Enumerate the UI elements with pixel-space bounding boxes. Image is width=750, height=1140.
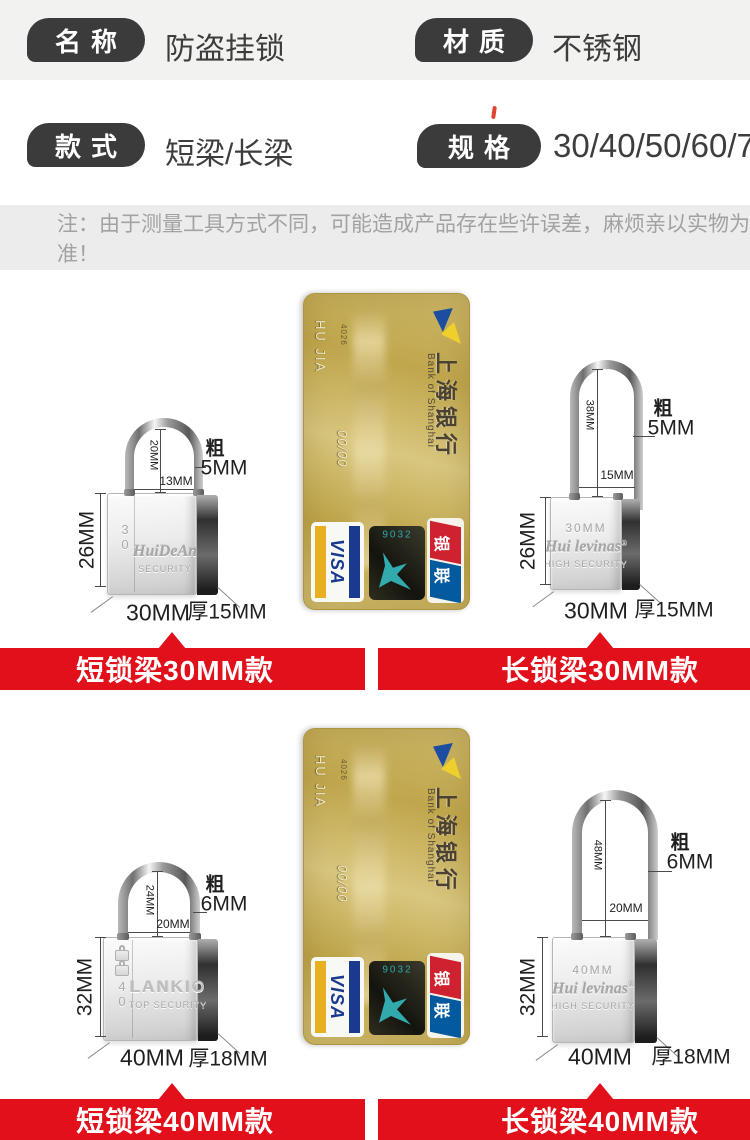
engraving-size: 40MM [572,963,613,977]
body-depth-label: 厚18MM [651,1047,730,1068]
engraving-subtitle: HIGH SECURITY [551,1001,635,1011]
dimension-line [597,369,598,497]
dimension-line [100,493,101,587]
padlock-engraving: HuiDeAn SECURITY [133,543,197,574]
dimension-line [605,800,606,937]
unionpay-logo: 银联 [427,518,464,603]
dimension-line [134,489,195,490]
padlock-shackle [572,790,658,940]
guide-line [536,1044,558,1061]
bank-card-reference: 上海银行 Bank of Shanghai 银联 4026 00/00 HU J… [305,293,470,608]
spec-pill-style-label: 款式 [55,127,127,164]
bank-card: 上海银行 Bank of Shanghai 银联 4026 00/00 HU J… [303,293,470,610]
spec-pill-material: 材质 [415,18,533,62]
guide-line [91,596,113,613]
engraving-subtitle: SECURITY [138,564,192,574]
card-bin: 4026 [339,759,348,781]
engraving-brand: HuiDeAn [133,543,197,561]
shackle-inner-height-label: 20MM [148,440,159,471]
padlock-figure-short-40mm: 24MM 20MM 粗 6MM 40 LANKIO TOP SECURITY 3… [70,855,285,1080]
dimension-line [100,937,101,1037]
bank-card: 上海银行 Bank of Shanghai 银联 4026 00/00 HU J… [303,728,470,1045]
engraving-brand: LANKIO [129,977,206,997]
body-width-label: 40MM [120,1047,184,1070]
bank-logo-icon [431,308,461,346]
banner-short-40mm: 短锁梁40MM款 [0,1099,365,1140]
body-width-label: 30MM [126,602,190,625]
engraving-side-number: 30 [119,523,131,553]
product-spec-page: 名称 防盗挂锁 材质 不锈钢 款式 短梁/长梁 规格 30/40/50/60/7… [0,0,750,1140]
shackle-gauge-label: 6MM [667,852,714,873]
padlock-body-side [635,939,657,1043]
measurement-note: 注：由于测量工具方式不同，可能造成产品存在些许误差，麻烦亲以实物为准！ [0,205,750,270]
dimension-line [582,920,648,921]
dimension-line [128,932,190,933]
padlock-engraving: 40MM Hui levinas® HIGH SECURITY [551,963,635,1011]
spec-value-name: 防盗挂锁 [165,24,285,68]
engraving-subtitle: HIGH SECURITY [544,559,628,569]
hologram-label: 9032 [382,965,412,976]
shackle-inner-height-label: 38MM [584,400,595,431]
hologram: 9032 [369,526,425,600]
banner-pointer-triangle [586,1083,614,1100]
engraving-brand: Hui levinas [552,980,628,997]
card-holder-name: HU JIA [313,320,328,373]
banner-long-40mm: 长锁梁40MM款 [378,1099,750,1140]
unionpay-label: 银联 [431,518,455,603]
banner-label: 短锁梁40MM款 [76,1100,274,1140]
dimension-line [579,487,635,488]
spec-pill-material-label: 材质 [443,22,515,59]
spec-value-style: 短梁/长梁 [165,129,293,173]
bank-name-en: Bank of Shanghai [425,788,436,883]
padlock-body-side [197,495,218,595]
padlock-figure-short-30mm: 20MM 13MM 粗 5MM 30 HuiDeAn SECURITY 26MM… [75,415,280,630]
shackle-inner-width-label: 20MM [609,902,642,914]
note-text: 注：由于测量工具方式不同，可能造成产品存在些许误差，麻烦亲以实物为准！ [57,208,750,268]
banner-pointer-triangle [158,1083,186,1100]
padlock-engraving: LANKIO TOP SECURITY [129,977,207,1010]
hologram-bird-icon [375,983,415,1027]
banner-label: 长锁梁40MM款 [501,1100,699,1140]
banner-long-30mm: 长锁梁30MM款 [378,648,750,690]
bank-card-reference: 上海银行 Bank of Shanghai 银联 4026 00/00 HU J… [305,728,470,1043]
body-height-label: 32MM [518,958,539,1016]
shackle-inner-width-label: 13MM [159,475,192,487]
spec-pill-name-label: 名称 [55,22,127,59]
stray-red-mark [491,106,497,119]
padlock-engraving-side: 40 [115,950,129,1010]
banner-pointer-triangle [586,632,614,649]
padlock-figure-long-30mm: 38MM 15MM 粗 5MM 30MM Hui levinas® HIGH S… [500,355,740,630]
spec-pill-size-label: 规格 [448,128,520,165]
shackle-inner-width-label: 20MM [156,918,189,930]
bank-logo-icon [431,743,461,781]
banner-pointer-triangle [158,632,186,649]
padlock-engraving-side: 30 [119,523,131,553]
shackle-gauge-label: 6MM [201,894,248,915]
card-holder-name: HU JIA [313,755,328,808]
spec-pill-name: 名称 [27,18,145,62]
shackle-gauge-label: 5MM [201,458,248,479]
engraving-registered-mark: ® [621,538,627,547]
body-height-label: 26MM [77,511,98,569]
card-bin: 4026 [339,324,348,346]
shackle-inner-height-label: 48MM [592,840,603,871]
body-width-label: 30MM [564,600,628,623]
banner-label: 长锁梁30MM款 [501,649,699,689]
hologram-label: 9032 [382,530,412,541]
shackle-gauge-label: 5MM [648,418,695,439]
spec-value-material: 不锈钢 [552,24,642,68]
visa-logo: VISA [311,957,364,1037]
card-expiry: 00/00 [335,865,350,903]
visa-logo: VISA [311,522,364,602]
dimension-line [545,497,546,585]
padlock-figure-long-40mm: 48MM 20MM 粗 6MM 40MM Hui levinas® HIGH S… [510,785,750,1075]
guide-line [88,1042,110,1059]
card-expiry: 00/00 [335,430,350,468]
engraving-brand: Hui levinas [545,538,621,555]
guide-line [532,591,554,607]
banner-label: 短锁梁30MM款 [76,649,274,689]
unionpay-logo: 银联 [427,953,464,1038]
hologram: 9032 [369,961,425,1035]
padlock-engraving-icon [115,965,129,976]
body-width-label: 40MM [568,1046,632,1069]
spec-pill-size: 规格 [417,124,541,168]
visa-label: VISA [326,957,347,1037]
dimension-line [542,937,543,1037]
hologram-bird-icon [375,548,415,592]
engraving-side-number: 40 [116,980,128,1010]
spec-pill-style: 款式 [27,123,145,167]
body-height-label: 32MM [75,958,96,1016]
engraving-subtitle: TOP SECURITY [129,1000,207,1010]
shackle-inner-height-label: 24MM [144,885,155,916]
unionpay-label: 银联 [431,953,455,1038]
body-depth-label: 厚18MM [188,1049,267,1070]
visa-label: VISA [326,522,347,602]
spec-value-size: 30/40/50/60/70 [553,127,750,165]
shackle-inner-width-label: 15MM [600,469,633,481]
banner-short-30mm: 短锁梁30MM款 [0,648,365,690]
engraving-size: 30MM [565,521,606,535]
body-height-label: 26MM [518,512,539,570]
body-depth-label: 厚15MM [634,600,713,621]
padlock-engraving: 30MM Hui levinas® HIGH SECURITY [544,521,628,569]
engraving-registered-mark: ® [628,980,634,989]
body-depth-label: 厚15MM [187,602,266,623]
bank-name-en: Bank of Shanghai [425,353,436,448]
